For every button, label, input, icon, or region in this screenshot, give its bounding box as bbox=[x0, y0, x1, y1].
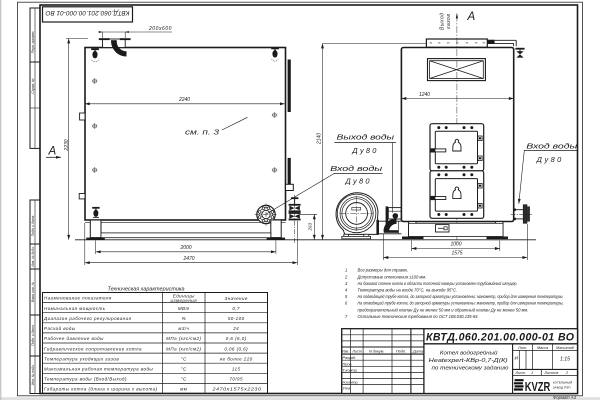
svg-text:Heatexpert-КВр-0,7-Д(К): Heatexpert-КВр-0,7-Д(К) bbox=[429, 358, 508, 364]
svg-text:Взам. инв. №: Взам. инв. № bbox=[31, 281, 35, 302]
svg-text:Температура уходящих газов: Температура уходящих газов bbox=[44, 356, 119, 361]
svg-text:Остальные технические требован: Остальные технические требования по ОСТ … bbox=[358, 314, 479, 319]
svg-text:Масштаб: Масштаб bbox=[556, 346, 575, 350]
svg-text:И: И bbox=[515, 356, 519, 362]
svg-text:Перв. примен.: Перв. примен. bbox=[31, 31, 35, 54]
svg-text:Диапазон рабочего регулировани: Диапазон рабочего регулирования bbox=[43, 316, 132, 321]
svg-text:1: 1 bbox=[345, 268, 347, 273]
svg-text:0,06 (0,6): 0,06 (0,6) bbox=[224, 346, 248, 351]
svg-text:МПа (кгс/см2): МПа (кгс/см2) bbox=[166, 336, 201, 341]
svg-text:КОТЕЛЬНЫЙ: КОТЕЛЬНЫЙ bbox=[553, 380, 572, 384]
svg-text:Значение: Значение bbox=[225, 296, 248, 301]
svg-text:Расход воды: Расход воды bbox=[44, 326, 76, 331]
svg-text:Изм.: Изм. bbox=[342, 350, 349, 354]
svg-text:Лист: Лист bbox=[351, 350, 362, 354]
svg-text:Инв. № подл.: Инв. № подл. bbox=[31, 364, 35, 385]
svg-text:0,6 (6,0): 0,6 (6,0) bbox=[226, 336, 247, 341]
svg-text:Масса: Масса bbox=[537, 346, 548, 350]
svg-text:N докум.: N докум. bbox=[369, 350, 384, 354]
svg-text:2140: 2140 bbox=[316, 133, 322, 145]
svg-text:см. п. 3: см. п. 3 bbox=[185, 129, 219, 136]
svg-text:МПа (кгс/см2): МПа (кгс/см2) bbox=[166, 346, 201, 351]
svg-text:Справ. №: Справ. № bbox=[31, 78, 35, 94]
svg-text:115: 115 bbox=[232, 367, 241, 372]
svg-text:Температура воды на входе 70°С: Температура воды на входе 70°С, на выход… bbox=[358, 288, 458, 293]
svg-text:по техническому заданию: по техническому заданию bbox=[432, 366, 509, 372]
svg-text:газов: газов bbox=[446, 14, 452, 29]
svg-text:2000: 2000 bbox=[179, 245, 191, 251]
svg-text:1575: 1575 bbox=[451, 251, 462, 257]
svg-text:МВт: МВт bbox=[178, 306, 190, 311]
svg-text:Лит.: Лит. bbox=[517, 346, 527, 350]
svg-text:Инв. № дубл.: Инв. № дубл. bbox=[31, 246, 35, 266]
svg-text:Температура воды (Вход/Выход): Температура воды (Вход/Выход) bbox=[44, 377, 127, 382]
svg-text:Пров.: Пров. bbox=[343, 362, 353, 366]
svg-text:°С: °С bbox=[181, 356, 187, 361]
svg-text:На подводящей трубе котла, до: На подводящей трубе котла, до запорной а… bbox=[358, 294, 564, 299]
svg-text:Максимальная рабочая температу: Максимальная рабочая температура воды bbox=[44, 367, 153, 372]
svg-text:1:15: 1:15 bbox=[560, 357, 570, 363]
svg-text:°С: °С bbox=[181, 367, 187, 372]
svg-text:Т.контр.: Т.контр. bbox=[343, 368, 358, 372]
svg-text:Гидравлическое сопротивление к: Гидравлическое сопротивление котла bbox=[44, 346, 142, 351]
svg-text:Выход воды: Выход воды bbox=[337, 133, 395, 142]
svg-text:Выход: Выход bbox=[439, 13, 445, 30]
svg-text:Допустимые отклонения ±100 мм.: Допустимые отклонения ±100 мм. bbox=[357, 274, 427, 279]
svg-text:2470х1575х2230: 2470х1575х2230 bbox=[211, 387, 261, 392]
svg-text:50-100: 50-100 bbox=[228, 316, 245, 321]
svg-text:м3/ч: м3/ч bbox=[178, 326, 189, 331]
svg-text:2240: 2240 bbox=[178, 97, 190, 103]
svg-text:КВТД.060.201.00.000-01 ВО: КВТД.060.201.00.000-01 ВО bbox=[45, 9, 129, 16]
svg-text:2230: 2230 bbox=[64, 139, 70, 151]
svg-text:Вход воды: Вход воды bbox=[330, 164, 383, 173]
svg-text:не более 220: не более 220 bbox=[220, 356, 253, 361]
svg-text:°С: °С bbox=[181, 377, 187, 382]
svg-text:Габариты котла (длина х ширина: Габариты котла (длина х ширина х высота) bbox=[44, 387, 158, 392]
svg-text:Подп. и дата: Подп. и дата bbox=[31, 325, 35, 346]
svg-text:1000: 1000 bbox=[450, 242, 461, 248]
svg-text:0,7: 0,7 bbox=[232, 306, 240, 311]
svg-text:Вход воды: Вход воды bbox=[526, 141, 578, 150]
svg-text:предохранительный клапан Ду не: предохранительный клапан Ду не менее 50 … bbox=[358, 307, 529, 312]
svg-text:%: % bbox=[182, 316, 186, 321]
svg-text:ЗАВОД РЭП: ЗАВОД РЭП bbox=[553, 386, 571, 390]
svg-text:На боковой стенке котла в обла: На боковой стенке котла в области топочн… bbox=[358, 281, 518, 286]
svg-text:Рабочее давление воды: Рабочее давление воды bbox=[44, 336, 104, 341]
svg-text:А: А bbox=[467, 11, 476, 23]
svg-text:Дата: Дата bbox=[412, 350, 423, 354]
svg-text:На отводящей трубе котла, до з: На отводящей трубе котла, до запорной ар… bbox=[358, 301, 564, 306]
svg-text:КВТД.060.201.00.000-01 ВО: КВТД.060.201.00.000-01 ВО bbox=[426, 332, 575, 344]
svg-text:Техническая характеристика: Техническая характеристика bbox=[108, 287, 185, 293]
svg-text:Наименование показателя: Наименование показателя bbox=[44, 296, 112, 301]
svg-text:Н.контр.: Н.контр. bbox=[343, 381, 359, 385]
svg-text:А: А bbox=[48, 146, 57, 158]
svg-text:мм: мм bbox=[180, 387, 187, 392]
svg-text:Листов: Листов bbox=[544, 371, 559, 375]
svg-text:Котел водогрейный: Котел водогрейный bbox=[440, 350, 498, 357]
svg-text:Номинальная мощность: Номинальная мощность bbox=[44, 306, 106, 311]
svg-text:Все размеры для справок.: Все размеры для справок. bbox=[358, 268, 409, 273]
svg-text:24: 24 bbox=[232, 326, 239, 331]
svg-text:70/95: 70/95 bbox=[229, 377, 243, 382]
svg-text:2470: 2470 bbox=[182, 256, 194, 262]
svg-text:1: 1 bbox=[531, 371, 533, 375]
svg-text:Подп. и дата: Подп. и дата bbox=[31, 216, 35, 237]
svg-text:Подп.: Подп. bbox=[396, 350, 406, 354]
svg-text:Формат А3: Формат А3 bbox=[553, 395, 577, 400]
svg-text:KVZR: KVZR bbox=[525, 379, 551, 394]
svg-text:200х600: 200х600 bbox=[148, 26, 172, 32]
svg-text:Лист: Лист bbox=[515, 371, 526, 375]
svg-text:измерения: измерения bbox=[171, 298, 198, 303]
svg-text:Разраб.: Разраб. bbox=[343, 356, 357, 360]
svg-text:1240: 1240 bbox=[419, 92, 430, 98]
svg-text:Утв.: Утв. bbox=[343, 387, 352, 391]
svg-text:263: 263 bbox=[308, 222, 313, 231]
